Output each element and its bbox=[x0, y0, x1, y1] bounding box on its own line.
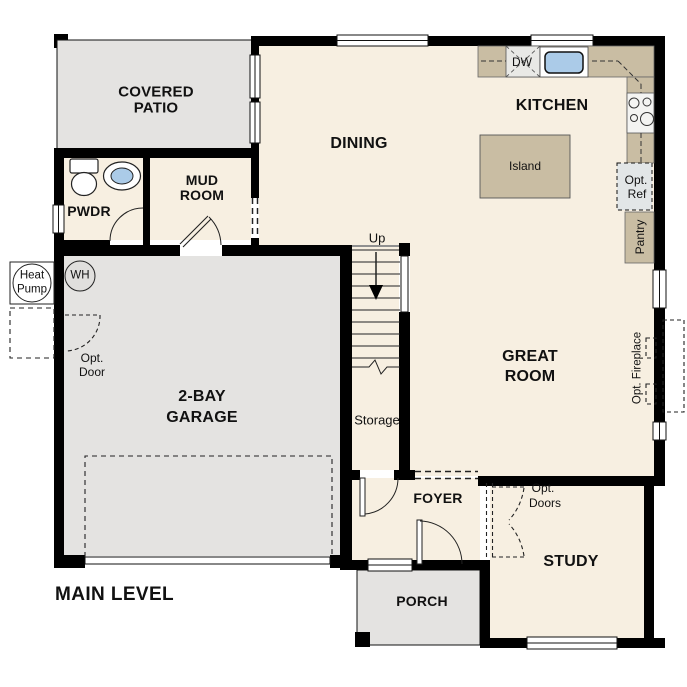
wall-mud-east-upper bbox=[251, 155, 259, 198]
wall-top bbox=[251, 36, 665, 46]
heat-pump-pad-dashed bbox=[10, 308, 54, 358]
label-garage-line1: 2-BAY bbox=[178, 389, 226, 405]
floorplan-main-level: COVERED PATIO PWDR MUD ROOM DINING KITCH… bbox=[0, 0, 687, 687]
label-great-room-line1: GREAT bbox=[502, 349, 558, 365]
label-water-heater: WH bbox=[70, 270, 89, 282]
wall-stair-pier bbox=[399, 243, 410, 256]
label-opt-door-line1: Opt. bbox=[81, 352, 104, 364]
garage-floor bbox=[64, 256, 340, 556]
wall-stair-right bbox=[399, 312, 410, 472]
label-heat-pump-line1: Heat bbox=[20, 270, 44, 282]
cased-opening-mud-dining bbox=[253, 198, 258, 238]
porch-pier bbox=[355, 632, 370, 647]
label-opt-doors-line1: Opt. bbox=[532, 482, 555, 494]
wall-patio-bottom bbox=[54, 148, 253, 158]
label-heat-pump-line2: Pump bbox=[17, 284, 47, 296]
wall-study-west bbox=[480, 560, 490, 648]
wall-garage-top-left bbox=[54, 245, 180, 256]
label-dishwasher: DW bbox=[512, 56, 532, 68]
label-storage: Storage bbox=[354, 414, 400, 427]
label-covered-patio-line1: COVERED bbox=[118, 85, 194, 100]
wall-garage-east bbox=[340, 245, 352, 568]
label-mud-room-line1: MUD bbox=[186, 173, 218, 187]
wall-mud-east-stub bbox=[251, 238, 259, 256]
label-main-level: MAIN LEVEL bbox=[55, 585, 174, 604]
label-opt-doors-line2: Doors bbox=[529, 497, 561, 509]
wall-dining-west-a bbox=[251, 36, 259, 55]
toilet bbox=[70, 159, 98, 196]
stair-railing bbox=[401, 256, 408, 312]
wall-pwdr-bottom bbox=[57, 240, 110, 245]
label-kitchen: KITCHEN bbox=[516, 98, 589, 114]
wall-garage-bl-corner bbox=[54, 555, 85, 568]
wall-dining-west-b bbox=[251, 98, 259, 102]
label-great-room-line2: ROOM bbox=[505, 369, 556, 385]
label-opt-door-line2: Door bbox=[79, 366, 105, 378]
wall-garage-top-right bbox=[222, 245, 352, 256]
wall-foyer-top-right bbox=[394, 470, 415, 480]
label-porch: PORCH bbox=[396, 594, 448, 608]
label-island: Island bbox=[509, 160, 541, 172]
wall-foyer-bottom bbox=[340, 560, 490, 570]
label-garage-line2: GARAGE bbox=[166, 410, 237, 426]
window-dining-west-2 bbox=[250, 102, 260, 143]
window-study bbox=[527, 637, 617, 649]
window-foyer-sidelight bbox=[368, 559, 412, 571]
garage-door bbox=[85, 557, 330, 564]
label-covered-patio-line2: PATIO bbox=[134, 101, 179, 116]
label-foyer: FOYER bbox=[413, 491, 462, 505]
wall-right-upper bbox=[654, 36, 665, 270]
label-opt-ref-line2: Ref bbox=[628, 188, 647, 200]
label-opt-ref-line1: Opt. bbox=[625, 174, 648, 186]
wall-foyer-top-left bbox=[340, 470, 360, 480]
cooktop bbox=[627, 93, 654, 133]
label-mud-room-line2: ROOM bbox=[180, 188, 224, 202]
label-pantry: Pantry bbox=[634, 220, 646, 255]
wall-garage-br-corner bbox=[330, 555, 352, 568]
window-kitchen-top bbox=[531, 35, 593, 46]
window-dining-west-1 bbox=[250, 55, 260, 98]
wall-study-top bbox=[478, 476, 665, 486]
label-up: Up bbox=[369, 232, 386, 245]
window-pwdr bbox=[53, 205, 64, 233]
label-study: STUDY bbox=[543, 554, 598, 570]
label-dining: DINING bbox=[330, 136, 387, 152]
window-right-2 bbox=[653, 422, 666, 440]
wall-study-right bbox=[644, 476, 654, 648]
label-pwdr: PWDR bbox=[67, 204, 111, 218]
window-right-1 bbox=[653, 270, 666, 308]
label-opt-fireplace: Opt. Fireplace bbox=[632, 332, 644, 404]
wall-pwdr-divider bbox=[143, 158, 150, 245]
window-dining-top bbox=[337, 35, 428, 46]
pwdr-sink bbox=[104, 162, 141, 190]
kitchen-sink bbox=[540, 47, 588, 77]
